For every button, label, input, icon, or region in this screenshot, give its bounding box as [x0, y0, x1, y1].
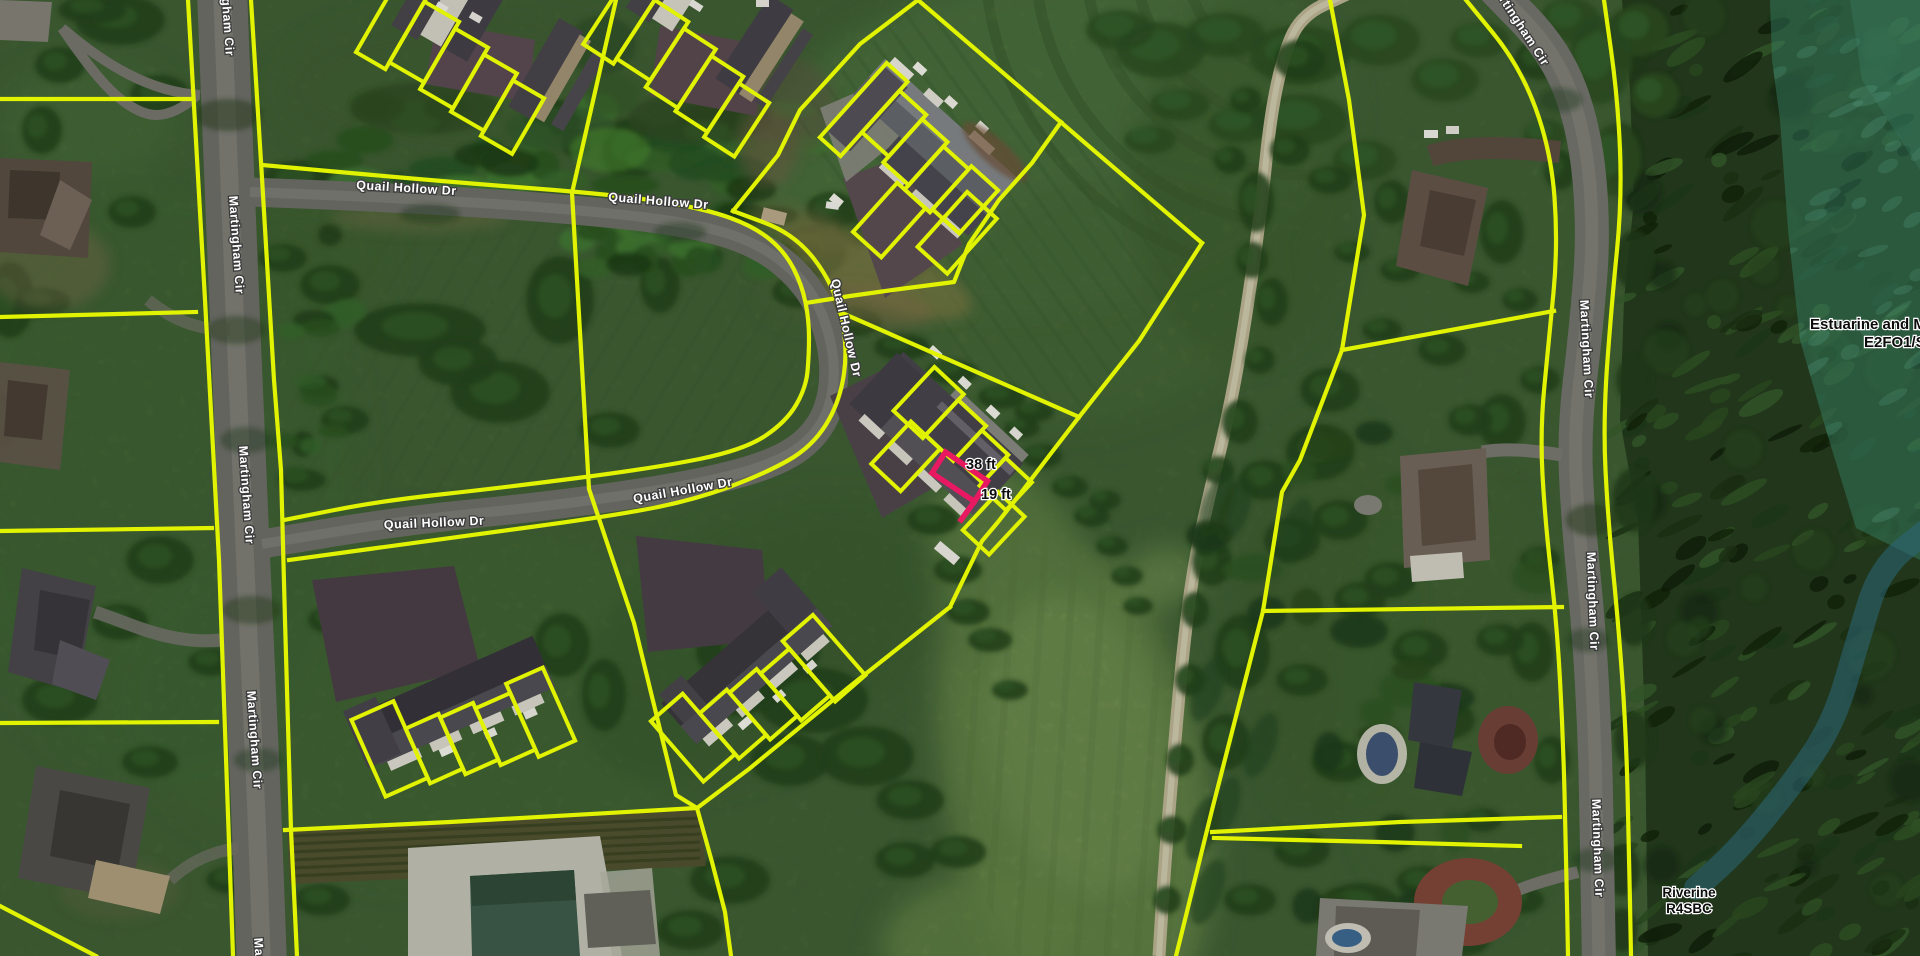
svg-text:Riverine: Riverine — [1662, 885, 1716, 900]
svg-text:R4SBC: R4SBC — [1666, 901, 1712, 916]
svg-text:E2FO1/S: E2FO1/S — [1864, 334, 1920, 351]
svg-text:19 ft: 19 ft — [981, 487, 1011, 503]
svg-text:Estuarine and Mar: Estuarine and Mar — [1810, 316, 1920, 333]
svg-text:38 ft: 38 ft — [966, 457, 996, 473]
